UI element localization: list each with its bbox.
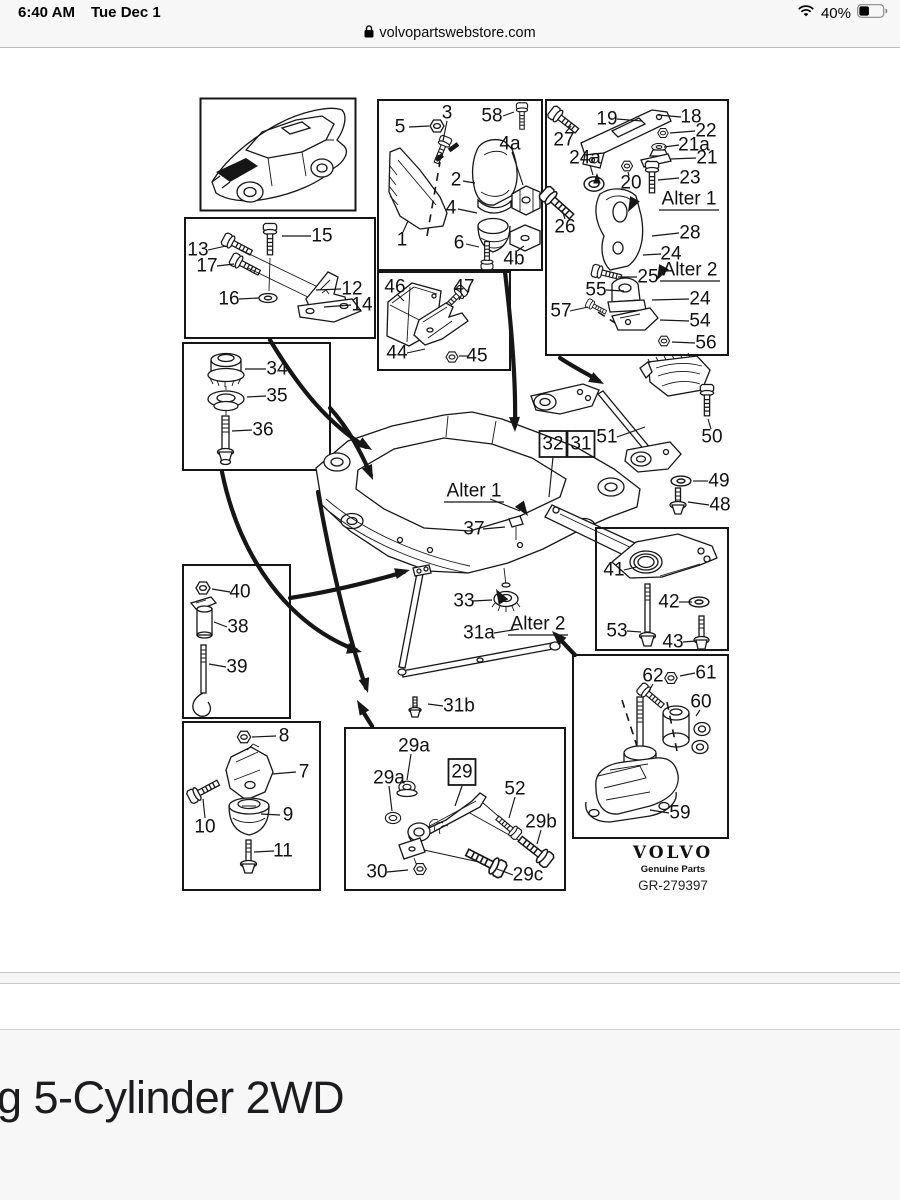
part-label: 59 bbox=[669, 803, 690, 824]
part-label: 54 bbox=[689, 311, 711, 332]
part-label: Alter 2 bbox=[663, 260, 718, 281]
parts-box-subframe-mount bbox=[183, 343, 330, 470]
part-label: 29b bbox=[525, 812, 557, 833]
part-label: 25 bbox=[637, 267, 658, 288]
part-label: 56 bbox=[695, 333, 716, 354]
part-label: 9 bbox=[283, 805, 294, 826]
part-label: 29a bbox=[373, 768, 405, 789]
page-footer: g 5-Cylinder 2WD bbox=[0, 1029, 900, 1200]
browser-chrome: 6:40 AMTue Dec 1 40% volvopartswebstore.… bbox=[0, 0, 900, 48]
part-label: 36 bbox=[252, 420, 273, 441]
part-label: 62 bbox=[642, 666, 663, 687]
part-label: 4a bbox=[499, 134, 521, 155]
part-label: 41 bbox=[603, 560, 624, 581]
part-label: 60 bbox=[690, 692, 711, 713]
car-inset bbox=[201, 99, 356, 211]
part-label: 10 bbox=[194, 817, 215, 838]
volvo-wordmark: VOLVO bbox=[598, 843, 748, 863]
part-label: 26 bbox=[554, 217, 575, 238]
genuine-parts-label: Genuine Parts bbox=[598, 864, 748, 875]
separator-band bbox=[0, 972, 900, 984]
part-label: 23 bbox=[679, 168, 700, 189]
parts-diagram: 53584a24614b19182221a212724a2023Alter 12… bbox=[0, 0, 900, 1200]
part-label: 8 bbox=[279, 726, 290, 747]
part-label: 11 bbox=[273, 841, 293, 862]
part-label: 40 bbox=[229, 582, 250, 603]
part-label: 3 bbox=[442, 103, 453, 124]
part-label: 6 bbox=[454, 233, 465, 254]
wifi-icon bbox=[797, 5, 815, 22]
part-label: 30 bbox=[366, 862, 387, 883]
part-label: 53 bbox=[606, 621, 627, 642]
part-label: 32 bbox=[542, 434, 563, 455]
part-label: 34 bbox=[266, 359, 288, 380]
part-label: 58 bbox=[481, 106, 502, 127]
part-label: 61 bbox=[695, 663, 716, 684]
page-heading-partial: g 5-Cylinder 2WD bbox=[0, 1072, 344, 1124]
status-right: 40% bbox=[797, 4, 888, 22]
part-label: 37 bbox=[463, 519, 484, 540]
part-label: 2 bbox=[451, 170, 462, 191]
part-label: Alter 1 bbox=[447, 481, 502, 502]
part-label: 4b bbox=[503, 249, 524, 270]
part-label: 48 bbox=[709, 495, 730, 516]
part-label: 42 bbox=[658, 592, 679, 613]
lock-icon bbox=[364, 25, 374, 38]
volvo-logo-block: VOLVO Genuine Parts GR-279397 bbox=[598, 843, 748, 893]
part-label: 14 bbox=[351, 295, 373, 316]
part-label: 38 bbox=[227, 617, 248, 638]
part-label: 31a bbox=[463, 623, 495, 644]
part-label: 15 bbox=[311, 226, 332, 247]
part-label: 4 bbox=[446, 198, 457, 219]
part-label: 16 bbox=[218, 289, 239, 310]
part-label: 39 bbox=[226, 657, 247, 678]
part-label: 29c bbox=[513, 865, 544, 886]
battery-icon bbox=[857, 4, 888, 22]
part-label: 21 bbox=[696, 148, 717, 169]
diagram-reference-code: GR-279397 bbox=[598, 878, 748, 893]
part-label: 29 bbox=[451, 762, 472, 783]
part-label: 35 bbox=[266, 386, 287, 407]
part-label: 50 bbox=[701, 427, 722, 448]
url-text: volvopartswebstore.com bbox=[379, 25, 535, 41]
part-label: 29a bbox=[398, 736, 430, 757]
part-label: Alter 2 bbox=[511, 614, 566, 635]
part-label: 44 bbox=[386, 343, 408, 364]
part-label: 46 bbox=[384, 277, 405, 298]
part-label: 1 bbox=[397, 230, 408, 251]
address-bar[interactable]: volvopartswebstore.com bbox=[0, 25, 900, 41]
part-label: 17 bbox=[196, 256, 217, 277]
part-label: 47 bbox=[453, 277, 474, 298]
part-label: 19 bbox=[596, 109, 617, 130]
part-label: 51 bbox=[596, 427, 617, 448]
part-label: 28 bbox=[679, 223, 700, 244]
part-label: 55 bbox=[585, 280, 606, 301]
part-label: 52 bbox=[504, 779, 525, 800]
part-label: 5 bbox=[395, 117, 406, 138]
part-label: 49 bbox=[708, 471, 729, 492]
status-time: 6:40 AM bbox=[18, 4, 75, 21]
status-date: Tue Dec 1 bbox=[91, 4, 161, 21]
part-label: 57 bbox=[550, 301, 571, 322]
battery-percent: 40% bbox=[821, 5, 851, 22]
part-label: Alter 1 bbox=[662, 189, 717, 210]
part-label: 24 bbox=[689, 289, 711, 310]
part-label: 45 bbox=[466, 346, 487, 367]
part-label: 31b bbox=[443, 696, 475, 717]
part-label: 20 bbox=[620, 173, 641, 194]
part-label: 24a bbox=[569, 148, 601, 169]
part-label: 43 bbox=[662, 632, 683, 653]
part-label: 7 bbox=[299, 762, 310, 783]
part-label: 31 bbox=[570, 434, 591, 455]
status-left: 6:40 AMTue Dec 1 bbox=[18, 4, 161, 21]
part-label: 33 bbox=[453, 591, 474, 612]
